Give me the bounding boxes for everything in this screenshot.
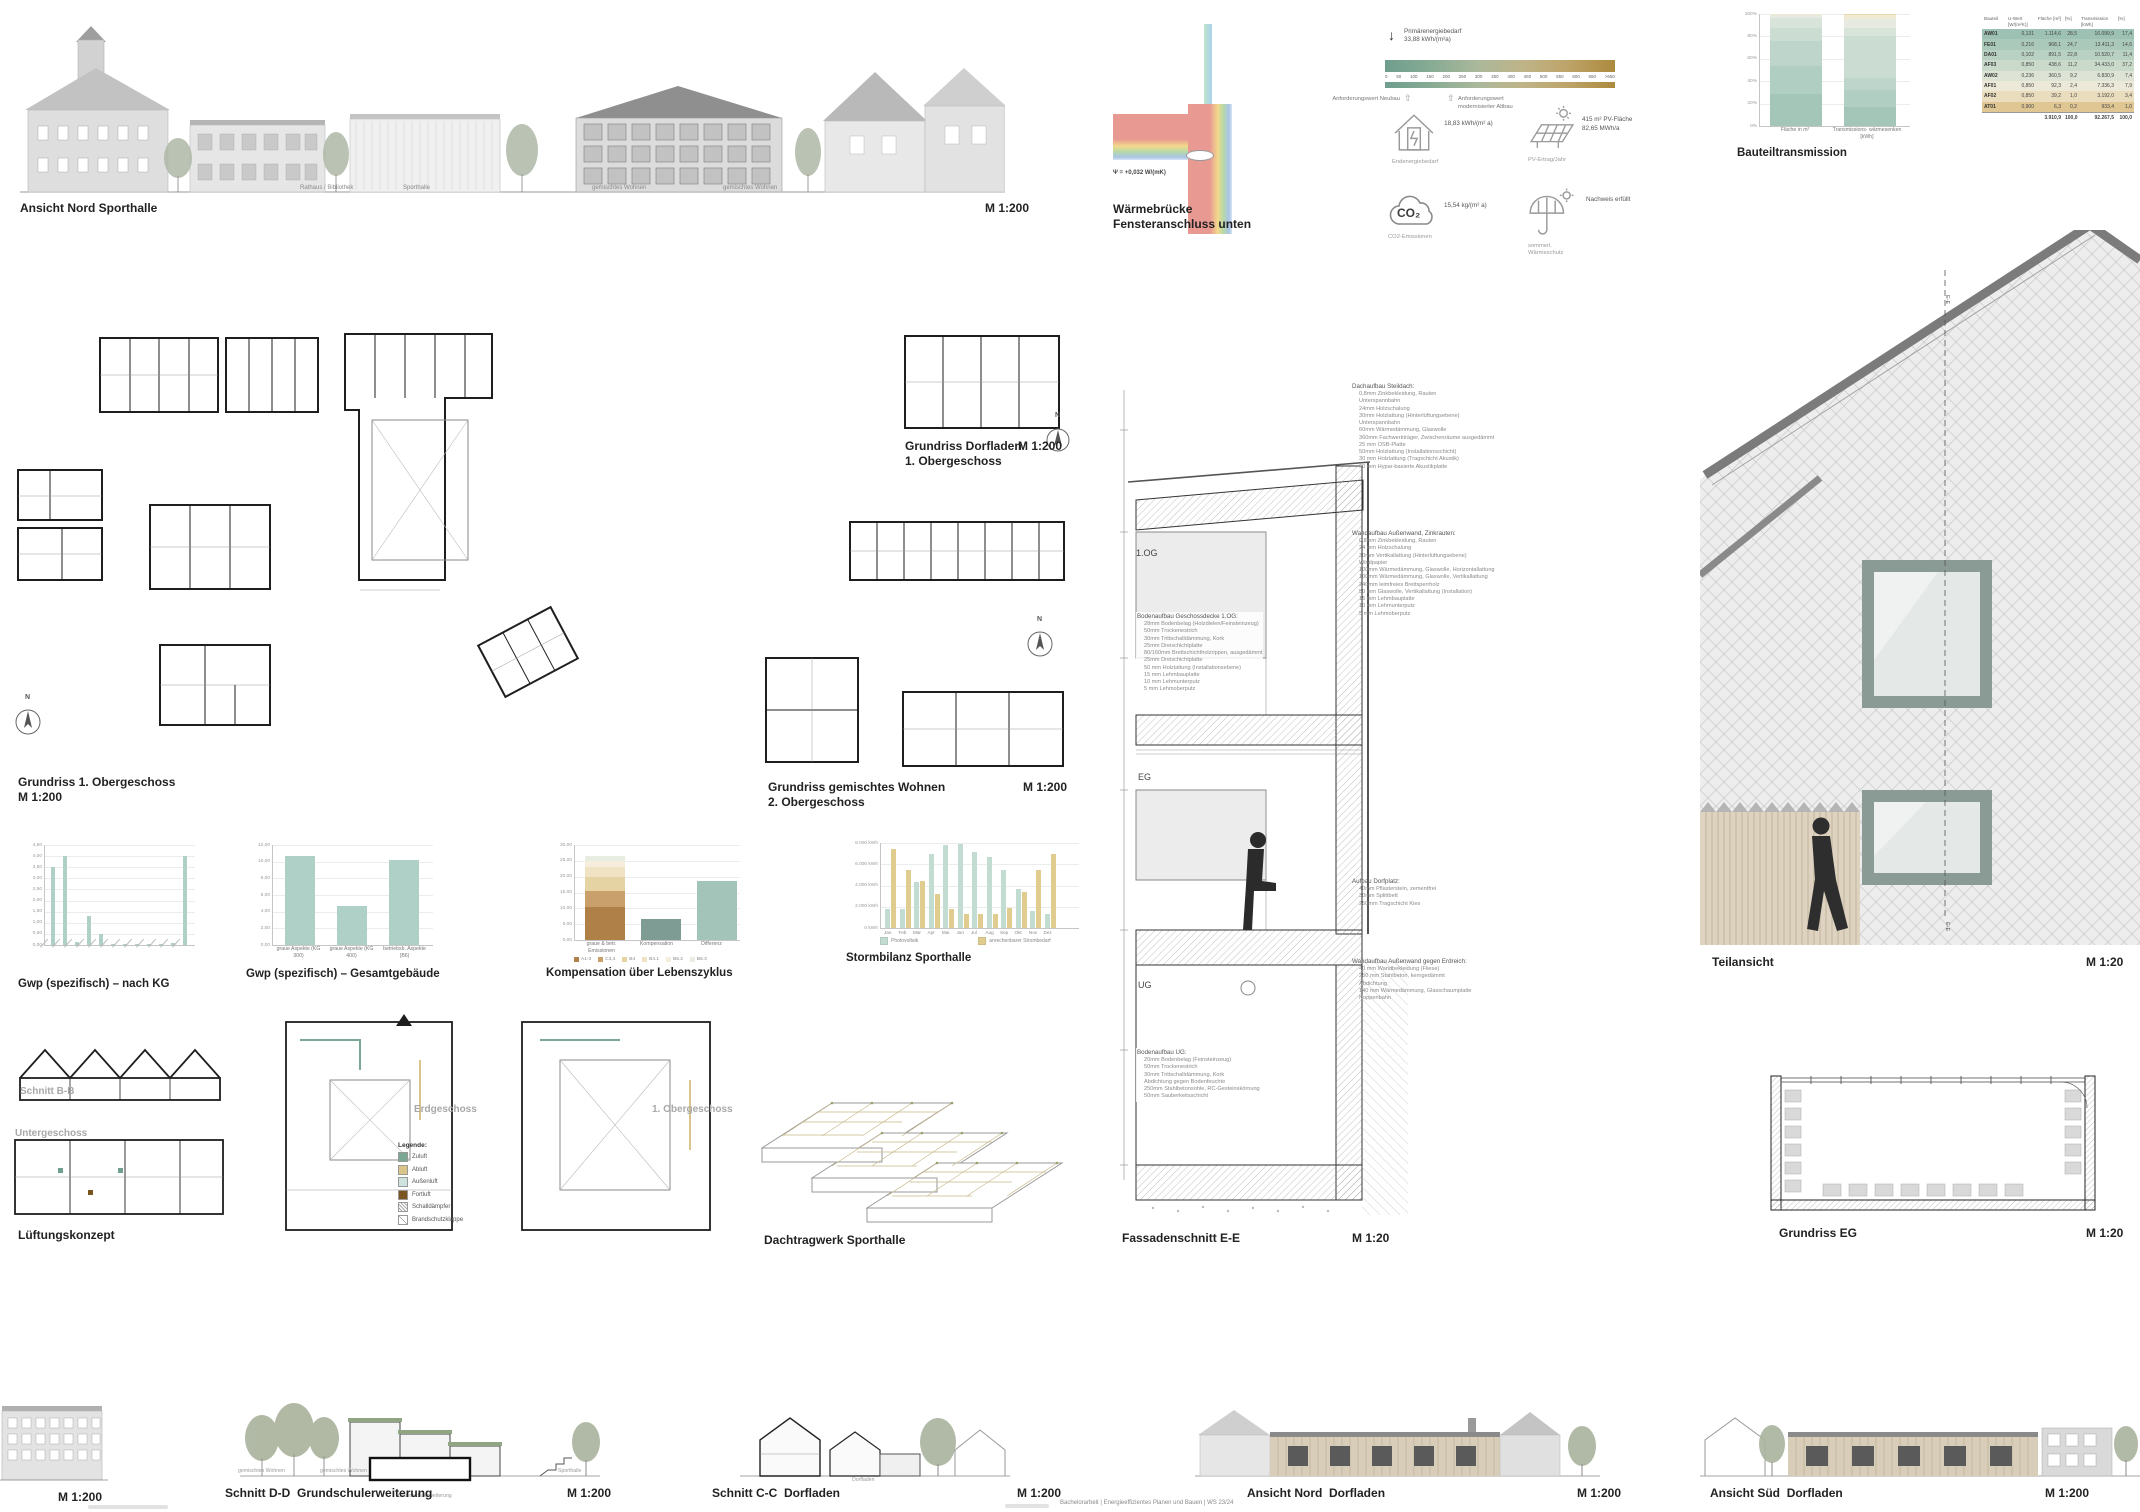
- fassadenschnitt-title: Fassadenschnitt E-E: [1122, 1231, 1240, 1245]
- energy-scale-ticks: 050100150200250300350400450500550600650>…: [1385, 74, 1615, 79]
- gwp-kg-plot: 0,000,501,001,502,002,503,003,504,004,50: [44, 845, 195, 946]
- legend-label: B4.1: [649, 957, 659, 962]
- bar: [900, 909, 905, 928]
- window-lower: [1862, 790, 1992, 885]
- building-label: Sporthalle: [403, 185, 430, 191]
- mini-label: gemischtes Wohnen: [238, 1468, 285, 1474]
- schnitt-cc-drawing: [740, 1418, 1010, 1476]
- stack-segment: [1844, 36, 1896, 78]
- table-total-cell: [2006, 112, 2036, 123]
- table-cell: AT01: [1982, 102, 2006, 112]
- scale-tick-label: 450: [1524, 74, 1532, 79]
- legend-label: A1-3: [581, 957, 591, 962]
- table-cell: 3.192,0: [2079, 91, 2116, 101]
- schnitt-dd-title: Schnitt D-D Grundschulerweiterung: [225, 1486, 432, 1500]
- kpi-label: CO2-Emissionen: [1388, 234, 1438, 241]
- sports-hall-plan: [345, 334, 492, 590]
- scale-tick-label: 50: [1396, 74, 1401, 79]
- table-cell: 9,2: [2063, 71, 2079, 81]
- bar: [993, 914, 998, 928]
- legend-label: Photovoltaik: [891, 938, 918, 944]
- legend-label: Außenluft: [412, 1179, 438, 1185]
- annotation-lines: 20mm Bodenbelag (Feinsteinzeug)50mm Troc…: [1137, 1057, 1260, 1101]
- annotation-title: Wandaufbau Außenwand, Zinkrauten:: [1352, 530, 1495, 538]
- legend-label: Schalldämpfer: [412, 1204, 450, 1210]
- kpi-value: 15,54 kg/(m² a): [1444, 202, 1487, 241]
- bauteil-table: BauteilU-Wert [W/(m²K)]Fläche [m²][%]Tra…: [1982, 14, 2134, 123]
- fassadenschnitt-scale: M 1:20: [1352, 1231, 1389, 1245]
- church-building: [25, 26, 170, 192]
- co2-cloud-icon: CO₂: [1388, 192, 1438, 232]
- annotation-title: Bodenaufbau UG:: [1137, 1049, 1260, 1057]
- legend-label: Abluft: [412, 1167, 427, 1173]
- bar-group: JanFebMärAprMaiJunJulAugSepOktNovDez: [885, 844, 1079, 928]
- bar-group: [585, 856, 740, 940]
- gwp-total-plot: 0,002,004,006,008,0010,0012,00: [272, 845, 433, 946]
- table-cell: 22,8: [2063, 50, 2079, 60]
- bar: [920, 881, 925, 928]
- title-part: Schnitt C-C: [712, 1486, 777, 1500]
- table-cell: 0,850: [2006, 81, 2036, 91]
- legend-label: B4: [629, 957, 635, 962]
- legend-label: Zuluft: [412, 1154, 427, 1160]
- plan-wohnen-title: Grundriss gemischtes Wohnen: [768, 780, 945, 795]
- left-fragment-scale: M 1:200: [58, 1490, 102, 1504]
- window-upper: [1862, 560, 1992, 708]
- primary-energy-label-line1: Primärenergiebedarf: [1404, 28, 1461, 36]
- table-cell: 28,5: [2063, 29, 2079, 39]
- chart-title: Kompensation über Lebenszyklus: [546, 967, 761, 979]
- legend-entry: B6.3: [690, 957, 707, 962]
- stack-segment: [1844, 19, 1896, 28]
- außenluft-swatch: [398, 1177, 408, 1187]
- ansicht-nord-drawing: [1195, 1410, 1600, 1476]
- kpi-label: Endenergiebedarf: [1392, 159, 1438, 166]
- annotation-line: 0,8mm Zinkbekleidung, Rauten: [1352, 391, 1494, 398]
- table-cell: 24,7: [2063, 39, 2079, 49]
- requirement-retrofit-label: Anforderungswert modernisierter Altbau: [1458, 96, 1538, 111]
- bar: [1007, 908, 1012, 928]
- legend-label: Brandschutzklappe: [412, 1217, 463, 1223]
- y-tick-label: 4,00: [261, 909, 270, 914]
- untergeschoss-plan: [15, 1140, 223, 1214]
- building-label: Rathaus / Bibliothek: [300, 185, 353, 191]
- bar: [641, 919, 681, 940]
- legend-item: Abluft: [398, 1165, 518, 1175]
- stack-segment: [1770, 66, 1822, 94]
- north-elevation-drawing: [20, 26, 1005, 198]
- bar: [949, 909, 954, 928]
- scale-tick-label: 150: [1426, 74, 1434, 79]
- stack-segment: [1844, 28, 1896, 36]
- kpi-value-line1: 415 m² PV-Fläche: [1582, 116, 1632, 125]
- annotation-line: 60mm Wärmedämmung, Glaswolle: [1352, 427, 1494, 434]
- y-tick-label: 0,00: [261, 943, 270, 948]
- plan-wohnen-label: Grundriss gemischtes Wohnen 2. Obergesch…: [768, 780, 945, 810]
- plan-og1-label: Grundriss 1. Obergeschoss M 1:200: [18, 775, 175, 805]
- legend-swatch: [622, 957, 627, 962]
- table-cell: 438,6: [2036, 60, 2063, 70]
- month-label: Apr: [928, 930, 935, 935]
- kompensation-plot: 0,005,0010,0015,0020,0025,0030,00: [574, 845, 740, 941]
- bar: [1045, 914, 1050, 928]
- mini-label: Dorfladen: [852, 1477, 875, 1483]
- y-tick-label: 2,50: [33, 887, 42, 892]
- energy-scale-bar: [1385, 60, 1615, 72]
- y-tick-label: 100%: [1745, 12, 1757, 17]
- annotation-line: Abdichtung gegen Bodenfeuchte: [1137, 1079, 1260, 1086]
- table-header-cell: [%]: [2116, 14, 2134, 29]
- annotation-line: 80/160mm Brettschichtholzrippen, ausgedä…: [1137, 650, 1262, 657]
- legend-entry: anrechenbarer Strombedarf: [978, 937, 1050, 945]
- scale-tick-label: 350: [1491, 74, 1499, 79]
- kpi-co2: CO₂ CO2-Emissionen 15,54 kg/(m² a): [1388, 192, 1487, 241]
- annotation-line: 40mm Pflasterstein, zementfrei: [1352, 886, 1436, 893]
- kpi-label: PV-Ertrag/Jahr: [1528, 157, 1576, 164]
- y-tick-label: 2,00: [261, 926, 270, 931]
- compass-north-label: N: [1037, 616, 1042, 623]
- table-cell: 39,2: [2036, 91, 2063, 101]
- rotated-plan: [478, 607, 578, 697]
- scale-tick-label: 500: [1540, 74, 1548, 79]
- bar: [906, 870, 911, 928]
- y-tick-label: 0,00: [563, 938, 572, 943]
- small-plan-1: [18, 470, 102, 520]
- annotation-line: Abdichtung: [1352, 981, 1472, 988]
- table-cell: 0,900: [2006, 102, 2036, 112]
- compass-north-label: N: [1055, 412, 1060, 419]
- bar: [1051, 854, 1056, 928]
- month-group: Mai: [943, 845, 954, 928]
- subtitle-part: Grundschulerweiterung: [297, 1486, 432, 1500]
- y-tick-label: 60%: [1747, 56, 1757, 61]
- y-tick-label: 40%: [1747, 79, 1757, 84]
- chart-title: Stormbilanz Sporthalle: [846, 952, 1091, 964]
- small-plan-4: [160, 645, 270, 725]
- y-tick-label: 0%: [1750, 124, 1757, 129]
- section-marker-ee: E-E: [1944, 295, 1950, 304]
- table-cell: 37,2: [2116, 60, 2134, 70]
- bauteiltransmission-chart: 0%20%40%60%80%100% Fläche in m² Transmis…: [1737, 14, 1937, 159]
- bar: [183, 856, 187, 945]
- bar: [337, 906, 367, 945]
- plan-wohnen-subtitle: 2. Obergeschoss: [768, 795, 945, 810]
- scale-tick-label: 400: [1507, 74, 1515, 79]
- stack-segment: [1770, 18, 1822, 28]
- down-arrow-icon: ↓: [1388, 27, 1395, 43]
- table-cell: 11,2: [2063, 60, 2079, 70]
- annotation-line: 25mm Dreischichtplatte: [1137, 643, 1262, 650]
- legend-entry: Photovoltaik: [880, 937, 918, 945]
- zuluft-swatch: [398, 1152, 408, 1162]
- scale-tick-label: 200: [1442, 74, 1450, 79]
- wohnen-plan-b: [903, 692, 1063, 766]
- annotation-line: 5 mm Lehmoberputz: [1352, 611, 1495, 618]
- x-category-label: Fläche in m²: [1759, 127, 1831, 141]
- small-plan-3: [150, 505, 270, 589]
- sports-hall-building: [350, 114, 500, 192]
- bar: [51, 867, 55, 945]
- annotation-lines: 40mm Pflasterstein, zementfrei30mm Split…: [1352, 886, 1436, 908]
- bar: [885, 909, 890, 928]
- ansicht-sued-drawing: [1700, 1418, 2140, 1476]
- plan-dorfladen-title: Grundriss Dorfladen: [905, 439, 1022, 454]
- scale-tick-label: 100: [1410, 74, 1418, 79]
- mixed-housing-building: [576, 86, 782, 192]
- table-header-cell: Bauteil: [1982, 14, 2006, 29]
- gwp-total-chart: 0,002,004,006,008,0010,0012,00 graue Asp…: [246, 845, 451, 980]
- schnitt-dd-drawing: [240, 1403, 600, 1480]
- table-cell: 6.830,9: [2079, 71, 2116, 81]
- annotation-wall: Wandaufbau Außenwand, Zinkrauten: 0,8mm …: [1352, 530, 1495, 618]
- thermal-bridge-title-line2: Fensteranschluss unten: [1113, 217, 1251, 232]
- energy-scale-bar-2: [1385, 82, 1615, 88]
- month-label: Sep: [1000, 930, 1008, 935]
- table-cell: 0,236: [2006, 71, 2036, 81]
- table-header-cell: Transmission [kWh]: [2079, 14, 2116, 29]
- legend-entry: C3,4: [598, 957, 615, 962]
- legend-swatch: [598, 957, 603, 962]
- annotation-line: 30 mm Holzlattung (Tragschicht Akustik): [1352, 456, 1494, 463]
- y-tick-label: 4.000 kWh: [855, 883, 878, 888]
- schnitt-cc-title: Schnitt C-C Dorfladen: [712, 1486, 840, 1500]
- annotation-basement-wall: Wandaufbau Außenwand gegen Erdreich: 40 …: [1352, 958, 1472, 1002]
- legend-swatch: [642, 957, 647, 962]
- section-marker-ee: E-E: [1944, 922, 1950, 931]
- thermal-bridge-title: Wärmebrücke Fensteranschluss unten: [1113, 202, 1251, 232]
- x-category-label: Differenz: [684, 941, 739, 955]
- legend-item: Zuluft: [398, 1152, 518, 1162]
- mini-label: gemischtes Wohnen: [320, 1468, 367, 1474]
- title-part: Schnitt D-D: [225, 1486, 290, 1500]
- table-cell: 16.099,9: [2079, 29, 2116, 39]
- rowhouse-plan-b: [226, 338, 318, 412]
- table-cell: AF01: [1982, 81, 2006, 91]
- psi-value: Ψ = +0,032 W/(mK): [1113, 170, 1166, 176]
- legend-entry: B6.2: [666, 957, 683, 962]
- legend-item: Brandschutzklappe: [398, 1215, 518, 1225]
- table-cell: 13.411,3: [2079, 39, 2116, 49]
- y-tick-label: 0 kWh: [864, 926, 878, 931]
- legend-swatch: [666, 957, 671, 962]
- annotation-title: Aufbau Dorfplatz:: [1352, 878, 1436, 886]
- legend-items: ZuluftAbluftAußenluftFortluftSchalldämpf…: [398, 1152, 518, 1225]
- annotation-line: Unterspannbahn: [1352, 398, 1494, 405]
- ventilation-drawings: [0, 1000, 760, 1250]
- annotation-line: 10 mm Lehmunterputz: [1352, 603, 1495, 610]
- table-cell: 10.520,7: [2079, 50, 2116, 60]
- y-tick-label: 10,00: [258, 859, 270, 864]
- y-tick-label: 10,00: [560, 906, 572, 911]
- stacked-bar: [1770, 14, 1822, 126]
- stacked-bar: [585, 856, 625, 940]
- section-marker: [1186, 150, 1214, 161]
- stacked-bar: [1844, 14, 1896, 126]
- gwp-kg-chart: 0,000,501,001,502,002,503,003,504,004,50…: [18, 845, 233, 990]
- month-group: Nov: [1030, 870, 1041, 928]
- month-group: Feb: [900, 870, 911, 928]
- month-group: Okt: [1016, 889, 1027, 928]
- umbrella-sun-icon: [1528, 186, 1574, 236]
- month-group: Jul: [972, 852, 983, 929]
- annotation-lines: 0,8mm Zinkbekleidung, Rauten24 mm Holzsc…: [1352, 538, 1495, 618]
- chart-title: Bauteiltransmission: [1737, 147, 1937, 159]
- annotation-title: Dachaufbau Steildach:: [1352, 383, 1494, 391]
- up-arrow-icon: ⇧: [1404, 93, 1412, 104]
- y-tick-label: 3,00: [33, 876, 42, 881]
- month-group: Aug: [987, 857, 998, 928]
- subtitle-part: Dorfladen: [784, 1486, 840, 1500]
- grundriss-eg-scale: M 1:20: [2086, 1226, 2123, 1240]
- annotation-plaza: Aufbau Dorfplatz: 40mm Pflasterstein, ze…: [1352, 878, 1436, 908]
- table-cell: AF02: [1982, 91, 2006, 101]
- annotation-line: 5 mm Lehmoberputz: [1137, 686, 1262, 693]
- x-category-label: Kompensation: [629, 941, 684, 955]
- annotation-line: 25 mm OSB-Platte: [1352, 442, 1494, 449]
- table-cell: 7,4: [2116, 71, 2134, 81]
- table-total-cell: 100,0: [2063, 112, 2079, 123]
- y-tick-label: 8,00: [261, 876, 270, 881]
- bar: [285, 856, 315, 945]
- annotation-floor: Bodenaufbau Geschossdecke 1.OG: 28mm Bod…: [1136, 612, 1263, 695]
- subtitle-part: Dorfladen: [1787, 1486, 1843, 1500]
- table-cell: 933,4: [2079, 102, 2116, 112]
- strombilanz-chart: 0 kWh2.000 kWh4.000 kWh6.000 kWh8.000 kW…: [846, 843, 1091, 964]
- table-total-cell: 92.267,5: [2079, 112, 2116, 123]
- bar: [697, 881, 737, 940]
- stack-segment: [1844, 90, 1896, 106]
- strombilanz-legend: Photovoltaik anrechenbarer Strombedarf: [880, 937, 1091, 945]
- legend-label: Fortluft: [412, 1192, 431, 1198]
- table-cell: 6,3: [2036, 102, 2063, 112]
- obergeschoss-plan: [522, 1022, 710, 1230]
- bar: [978, 914, 983, 928]
- bar: [935, 894, 940, 928]
- table-header-cell: U-Wert [W/(m²K)]: [2006, 14, 2036, 29]
- footer-illegible-text: [88, 1505, 168, 1509]
- annotation-line: 10 mm Lehmunterputz: [1137, 679, 1262, 686]
- scale-tick-label: 300: [1475, 74, 1483, 79]
- y-tick-label: 1,50: [33, 909, 42, 914]
- lueftungskonzept-title: Lüftungskonzept: [18, 1228, 115, 1242]
- bar: [943, 845, 948, 928]
- partial-elevation-drawing: [1700, 230, 2140, 945]
- compass-icons: [16, 429, 1069, 734]
- table-cell: 3,4: [2116, 91, 2134, 101]
- scale-tick-label: >650: [1605, 74, 1615, 79]
- annotation-line: 30mm Splittbett: [1352, 893, 1436, 900]
- bar-group: [51, 856, 195, 945]
- teilansicht-title: Teilansicht: [1712, 955, 1774, 969]
- co2-text: CO₂: [1397, 206, 1420, 220]
- month-group: Apr: [929, 854, 940, 928]
- legend-swatch: [690, 957, 695, 962]
- strombilanz-plot: 0 kWh2.000 kWh4.000 kWh6.000 kWh8.000 kW…: [880, 843, 1079, 929]
- y-tick-label: 4,50: [33, 843, 42, 848]
- town-hall-building: [190, 120, 325, 192]
- bar: [914, 882, 919, 928]
- annotation-title: Wandaufbau Außenwand gegen Erdreich:: [1352, 958, 1472, 966]
- chart-title: Gwp (spezifisch) – nach KG: [18, 978, 233, 990]
- elevation-title: Ansicht Nord Sporthalle: [20, 201, 157, 215]
- annotation-line: 24mm Holzschalung: [1352, 406, 1494, 413]
- table-cell: 360,5: [2036, 71, 2063, 81]
- y-tick-label: 5,00: [563, 922, 572, 927]
- window-frame-gradient: [1204, 24, 1212, 104]
- table-cell: 2,4: [2063, 81, 2079, 91]
- fortluft-swatch: [398, 1190, 408, 1200]
- table-cell: AW02: [1982, 71, 2006, 81]
- month-group: Sep: [1001, 870, 1012, 928]
- y-tick-label: 20%: [1747, 101, 1757, 106]
- y-tick-label: 6,00: [261, 893, 270, 898]
- y-tick-label: 15,00: [560, 890, 572, 895]
- annotation-line: 30mm Holzlattung (Hinterlüftungsebene): [1352, 413, 1494, 420]
- table-cell: 92,3: [2036, 81, 2063, 91]
- annotation-line: 60 mm Hypar-basierte Akustikplatte: [1352, 464, 1494, 471]
- y-tick-label: 0,50: [33, 931, 42, 936]
- table-cell: 0,216: [2006, 39, 2036, 49]
- month-label: Mai: [942, 930, 949, 935]
- x-category-label: graue & betr. Emissionen: [574, 941, 629, 955]
- annotation-line: 50 mm Holzlattung (Installationsebene): [1137, 665, 1262, 672]
- annotation-line: 50mm Holzlattung (Installationsschicht): [1352, 449, 1494, 456]
- legend-entry: B4: [622, 957, 635, 962]
- kpi-end-energy: Endenergiebedarf 18,83 kWh/(m² a): [1392, 110, 1493, 166]
- annotation-line: 30mm Vertikallattung (Hinterlüftungseben…: [1352, 553, 1495, 560]
- stack-segment: [1770, 28, 1822, 41]
- thermal-bridge-title-line1: Wärmebrücke: [1113, 202, 1251, 217]
- legend-item: Außenluft: [398, 1177, 518, 1187]
- legend-swatch: [574, 957, 579, 962]
- presentation-board: Rathaus / Bibliothek Sporthalle gemischt…: [0, 0, 2140, 1512]
- annotation-lines: 28mm Bodenbelag (Holzdielen/Feinsteinzeu…: [1137, 621, 1262, 694]
- annotation-line: 15 mm Lehmbauplatte: [1137, 672, 1262, 679]
- chart-title: Gwp (spezifisch) – Gesamtgebäude: [246, 968, 451, 980]
- annotation-line: 140 mm Wärmedämmung, Glasschaumplatte: [1352, 988, 1472, 995]
- dachtragwerk-title: Dachtragwerk Sporthalle: [764, 1233, 905, 1247]
- kpi-value: Nachweis erfüllt: [1586, 196, 1630, 257]
- title-part: Ansicht Süd: [1710, 1486, 1780, 1500]
- bar: [1001, 870, 1006, 928]
- annotation-line: 240mm leimfreies Brettsperrholz: [1352, 582, 1495, 589]
- plan-og1-scale: M 1:200: [18, 790, 175, 805]
- up-arrow-icon: ⇧: [1447, 93, 1455, 104]
- compass-north-label: N: [25, 694, 30, 701]
- erdgeschoss-label: Erdgeschoss: [414, 1104, 477, 1115]
- x-category-label: graue Aspekte (KG 300): [272, 946, 325, 960]
- bar: [389, 860, 419, 945]
- wohnen-plan-a: [766, 658, 858, 762]
- table-total-cell: 3.910,9: [2036, 112, 2063, 123]
- abluft-swatch: [398, 1165, 408, 1175]
- y-tick-label: 1,00: [33, 920, 42, 925]
- annotation-line: 25mm Dreischichtplatte: [1137, 657, 1262, 664]
- month-label: Okt: [1015, 930, 1022, 935]
- bauteiltransmission-xlabels: Fläche in m² Transmissions- wärmesenken …: [1759, 127, 1909, 141]
- kpi-value: 415 m² PV-Fläche 82,65 MWh/a: [1582, 116, 1632, 164]
- kompensation-chart: 0,005,0010,0015,0020,0025,0030,00 graue …: [546, 845, 761, 979]
- table-cell: 891,5: [2036, 50, 2063, 60]
- legend-title: Legende:: [398, 1142, 518, 1149]
- subtitle-part: Dorfladen: [1329, 1486, 1385, 1500]
- small-plan-2: [18, 528, 102, 580]
- annotation-line: 100mm Wärmedämmung, Glaswolle, Horizonta…: [1352, 567, 1495, 574]
- ansicht-nord-title: Ansicht Nord Dorfladen: [1247, 1486, 1385, 1500]
- row-plan-strip: [850, 522, 1064, 580]
- kpi-summer-heat: sommerl. Wärmeschutz Nachweis erfüllt: [1528, 186, 1630, 257]
- annotation-line: 40 mm Wandbekleidung (Fliese): [1352, 966, 1472, 973]
